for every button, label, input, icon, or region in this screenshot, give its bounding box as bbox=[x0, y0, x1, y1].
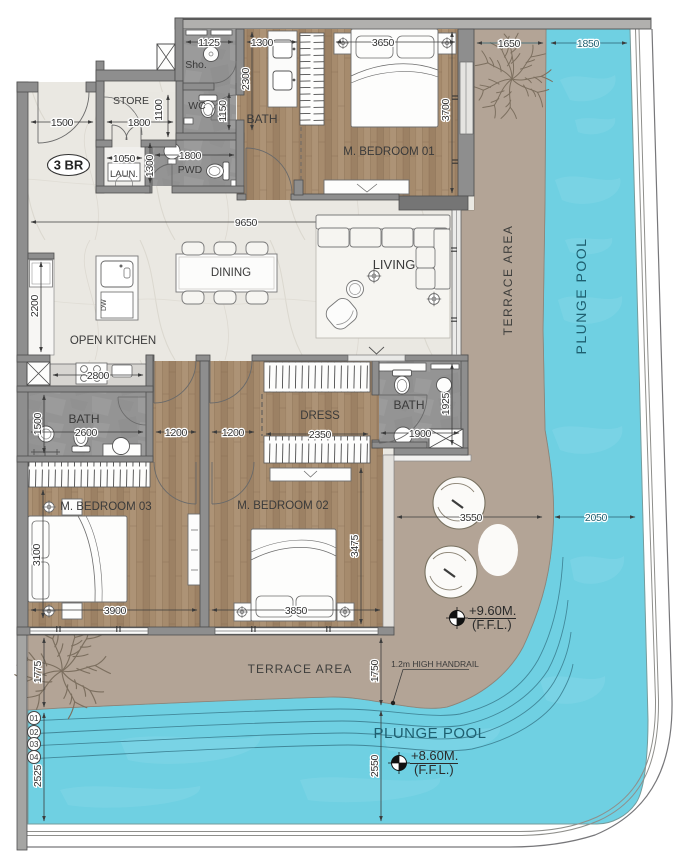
svg-text:1100: 1100 bbox=[153, 99, 165, 121]
svg-text:3650: 3650 bbox=[372, 37, 395, 49]
svg-text:PLUNGE POOL: PLUNGE POOL bbox=[573, 238, 589, 355]
svg-text:TERRACE AREA: TERRACE AREA bbox=[501, 225, 515, 336]
svg-text:DRESS: DRESS bbox=[300, 410, 340, 422]
svg-text:DW: DW bbox=[101, 299, 108, 311]
svg-text:1300: 1300 bbox=[144, 154, 156, 177]
svg-text:1500: 1500 bbox=[32, 412, 44, 435]
svg-text:3475: 3475 bbox=[349, 534, 361, 557]
svg-text:(F.F.L.): (F.F.L.) bbox=[472, 617, 512, 632]
svg-text:04: 04 bbox=[30, 753, 39, 762]
svg-text:01: 01 bbox=[30, 714, 39, 723]
svg-text:2300: 2300 bbox=[240, 67, 252, 90]
svg-text:1125: 1125 bbox=[198, 37, 220, 49]
svg-text:03: 03 bbox=[30, 740, 39, 749]
svg-text:3700: 3700 bbox=[440, 98, 452, 121]
svg-text:1300: 1300 bbox=[251, 37, 274, 49]
svg-text:M. BEDROOM 03: M. BEDROOM 03 bbox=[60, 501, 151, 513]
svg-text:1750: 1750 bbox=[369, 659, 381, 682]
svg-text:1850: 1850 bbox=[577, 38, 600, 50]
svg-text:BATH: BATH bbox=[393, 398, 424, 412]
svg-text:PLUNGE POOL: PLUNGE POOL bbox=[373, 725, 486, 742]
svg-text:3 BR: 3 BR bbox=[54, 158, 84, 173]
svg-text:BATH: BATH bbox=[68, 412, 99, 426]
svg-text:LAUN.: LAUN. bbox=[110, 169, 138, 180]
svg-text:1200: 1200 bbox=[165, 427, 188, 439]
svg-text:2525: 2525 bbox=[32, 764, 44, 787]
svg-text:Sho.: Sho. bbox=[185, 59, 207, 71]
svg-text:1800: 1800 bbox=[128, 117, 151, 129]
svg-text:(F.F.L.): (F.F.L.) bbox=[414, 762, 454, 777]
svg-text:PWD: PWD bbox=[178, 164, 203, 176]
svg-text:1650: 1650 bbox=[498, 38, 521, 50]
svg-text:OPEN KITCHEN: OPEN KITCHEN bbox=[70, 335, 156, 347]
svg-text:2600: 2600 bbox=[75, 427, 98, 439]
svg-text:3100: 3100 bbox=[31, 543, 43, 566]
svg-text:3900: 3900 bbox=[104, 605, 127, 617]
svg-text:DINING: DINING bbox=[211, 267, 251, 279]
svg-text:M. BEDROOM 02: M. BEDROOM 02 bbox=[237, 500, 328, 512]
svg-text:1775: 1775 bbox=[32, 660, 44, 683]
svg-text:3850: 3850 bbox=[285, 605, 308, 617]
svg-text:3550: 3550 bbox=[460, 512, 483, 524]
svg-text:2200: 2200 bbox=[29, 294, 41, 317]
svg-text:BATH: BATH bbox=[246, 112, 277, 126]
svg-text:WC: WC bbox=[188, 100, 206, 112]
svg-text:+9.60M.: +9.60M. bbox=[469, 603, 516, 618]
svg-text:1900: 1900 bbox=[409, 428, 432, 440]
svg-text:1500: 1500 bbox=[51, 117, 74, 129]
svg-text:9650: 9650 bbox=[235, 217, 258, 229]
svg-text:STORE: STORE bbox=[113, 95, 149, 107]
svg-text:1200: 1200 bbox=[222, 427, 245, 439]
svg-text:1150: 1150 bbox=[217, 100, 229, 122]
svg-text:M. BEDROOM 01: M. BEDROOM 01 bbox=[343, 146, 434, 158]
svg-text:2350: 2350 bbox=[309, 429, 332, 441]
svg-text:LIVING: LIVING bbox=[373, 257, 416, 272]
svg-text:1.2m HIGH HANDRAIL: 1.2m HIGH HANDRAIL bbox=[391, 659, 479, 669]
svg-text:2800: 2800 bbox=[87, 370, 110, 382]
svg-text:2550: 2550 bbox=[369, 754, 381, 777]
svg-text:1925: 1925 bbox=[440, 392, 452, 415]
svg-text:02: 02 bbox=[30, 728, 39, 737]
svg-text:1050: 1050 bbox=[113, 153, 136, 165]
svg-text:TERRACE AREA: TERRACE AREA bbox=[248, 662, 353, 676]
svg-text:2050: 2050 bbox=[585, 512, 608, 524]
svg-text:+8.60M.: +8.60M. bbox=[411, 748, 458, 763]
svg-text:1800: 1800 bbox=[179, 150, 202, 162]
